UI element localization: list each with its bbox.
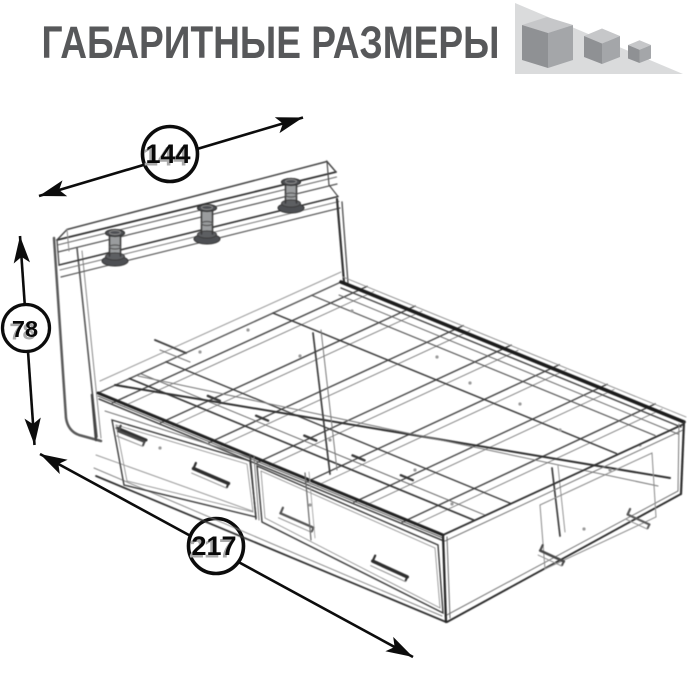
svg-text:78: 78 — [12, 316, 38, 342]
svg-text:144: 144 — [145, 139, 190, 169]
svg-text:217: 217 — [191, 531, 236, 561]
svg-text:ГАБАРИТНЫЕ РАЗМЕРЫ: ГАБАРИТНЫЕ РАЗМЕРЫ — [42, 17, 500, 68]
